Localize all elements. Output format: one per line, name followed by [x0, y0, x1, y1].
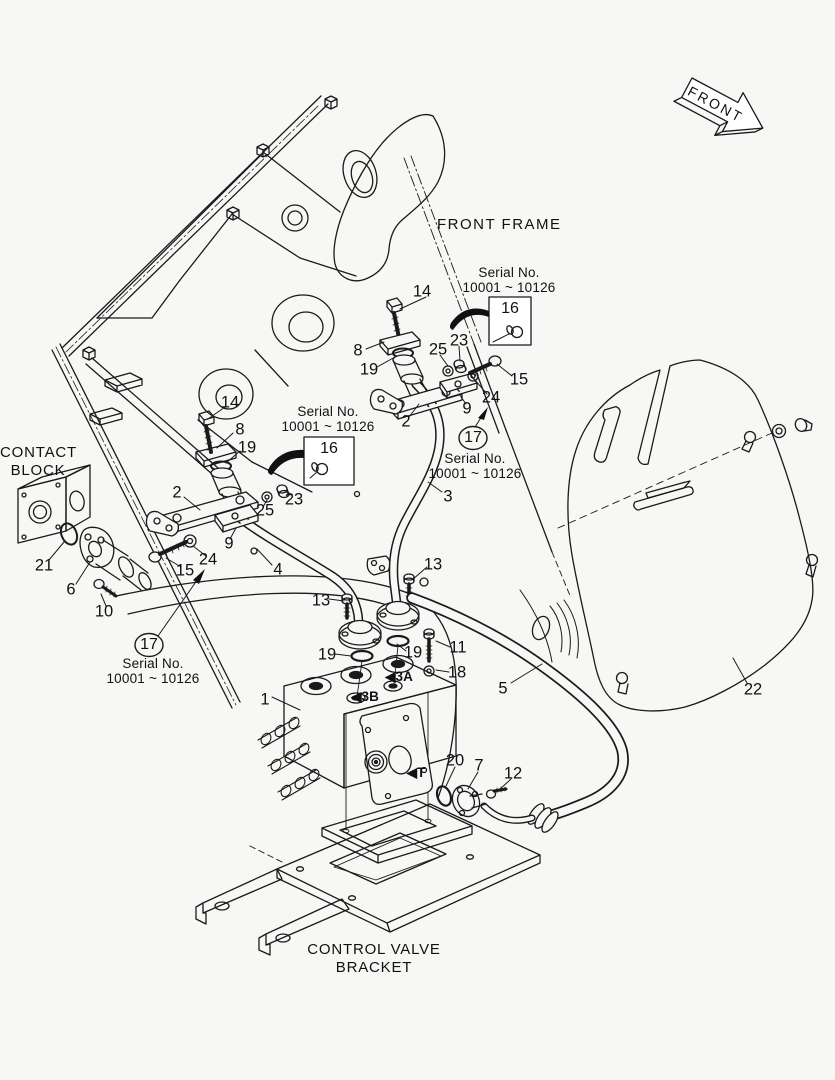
parts-diagram-page: FRONT FRONT FRAME CONTACT BLOCK CONTROL …: [0, 0, 835, 1080]
callout-3: 3: [443, 488, 452, 507]
callout-24: 24: [199, 551, 217, 570]
callout-15: 15: [510, 371, 528, 390]
callout-19: 19: [318, 646, 336, 665]
callout-6: 6: [66, 581, 75, 600]
callout-2: 2: [172, 484, 181, 503]
callout-layer: 1481925231524923148192232592415421610131…: [0, 0, 835, 1080]
callout-20: 20: [446, 752, 464, 771]
callout-13: 13: [424, 556, 442, 575]
callout-5: 5: [498, 680, 507, 699]
callout-22: 22: [744, 681, 762, 700]
callout-9: 9: [224, 535, 233, 554]
callout-10: 10: [95, 603, 113, 622]
callout-12: 12: [504, 765, 522, 784]
callout-19: 19: [404, 644, 422, 663]
callout-15: 15: [176, 562, 194, 581]
callout-18: 18: [448, 664, 466, 683]
callout-13: 13: [312, 592, 330, 611]
callout-21: 21: [35, 557, 53, 576]
callout-19: 19: [238, 439, 256, 458]
callout-9: 9: [462, 400, 471, 419]
callout-24: 24: [482, 389, 500, 408]
callout-T: ◀T: [407, 765, 426, 781]
callout-8: 8: [235, 421, 244, 440]
callout-23: 23: [285, 491, 303, 510]
callout-8: 8: [353, 342, 362, 361]
callout-4: 4: [273, 561, 282, 580]
callout-1: 1: [260, 691, 269, 710]
callout-14: 14: [221, 394, 239, 413]
callout-23: 23: [450, 332, 468, 351]
callout-14: 14: [413, 283, 431, 302]
callout-7: 7: [474, 757, 483, 776]
callout-25: 25: [429, 341, 447, 360]
callout-3A: ◀3A: [385, 669, 413, 685]
callout-11: 11: [449, 639, 466, 658]
callout-25: 25: [256, 502, 274, 521]
callout-3B: ◀3B: [351, 689, 379, 705]
callout-2: 2: [401, 413, 410, 432]
callout-19: 19: [360, 361, 378, 380]
